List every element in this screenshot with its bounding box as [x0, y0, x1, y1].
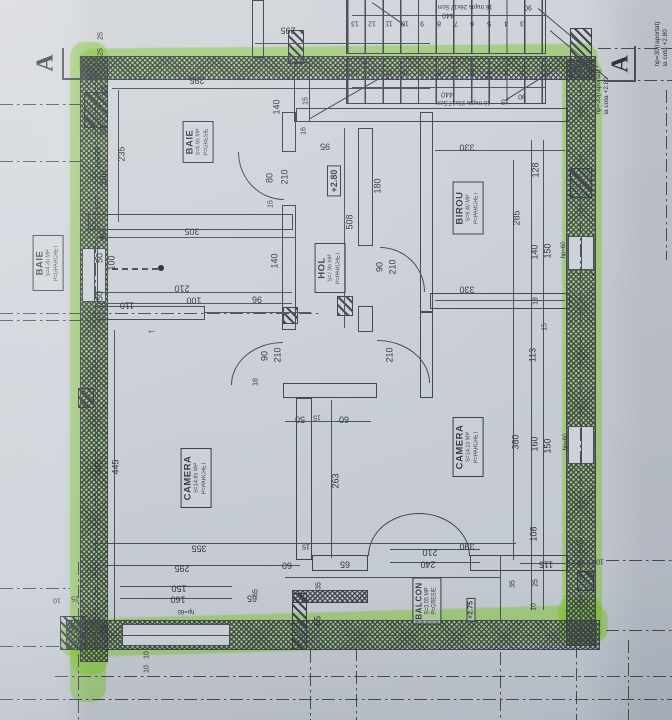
room-label-camera2: CAMERA S=14.15 MP P=PARCHET [453, 417, 484, 477]
dim-label: 15 [302, 543, 310, 550]
dim-label: 35 [510, 580, 517, 588]
dim-label: 100 [186, 296, 201, 305]
dim-label: 285 [513, 210, 522, 225]
wall-stair-left [294, 62, 310, 122]
axis-line [666, 90, 667, 260]
dim-label: 10 [144, 651, 151, 659]
dim-label: 25 [533, 579, 540, 587]
step-number: 9 [420, 20, 424, 27]
step-number: 6 [470, 69, 474, 76]
dim-label: 140 [271, 253, 280, 268]
step-number: 10 [401, 20, 409, 27]
dimension-line [435, 150, 565, 151]
dim-label: 160 [531, 436, 540, 451]
dim-label: 160 [170, 595, 185, 604]
step-number: 11 [385, 69, 392, 76]
dim-label: 150 [171, 584, 186, 593]
wall-hol-right-upper [358, 128, 373, 246]
dim-label: 10 [596, 558, 604, 565]
note-hp30: hp=30(raportat) la cota +2.80 [595, 70, 611, 115]
dim-label: 50 [96, 253, 105, 263]
axis-line [310, 650, 311, 720]
dim-label: 390 [459, 542, 474, 551]
dim-label: 140 [531, 244, 540, 259]
dimension-line [114, 330, 115, 620]
dim-label: 180 [374, 178, 383, 193]
dimension-line [112, 88, 430, 89]
dim-label: 100 [108, 255, 117, 270]
dim-label: 18 [253, 378, 260, 386]
dim-label: 15 [501, 98, 509, 105]
dim-label: 440 [442, 12, 454, 19]
axis-line [0, 646, 62, 647]
axis-line [576, 645, 577, 720]
room-label-balcon: BALCON S=3.05 MP P=GRESIE [412, 578, 441, 625]
dim-label: 210 [174, 284, 189, 293]
step-number: 13 [351, 69, 359, 76]
room-area: S=4.30 MP [46, 241, 53, 284]
step-number: 11 [385, 20, 392, 27]
room-name: CAMERA [456, 421, 466, 473]
axis-line [0, 313, 320, 314]
dim-label: 90 [524, 4, 532, 11]
dim-label: 90 [376, 262, 385, 272]
dim-label: 10 [144, 665, 151, 673]
dim-label: 50 [295, 415, 305, 424]
dim-label: 15 [102, 625, 109, 633]
room-area: S=7.95 MP [328, 249, 335, 287]
dim-label: 150 [544, 438, 553, 453]
room-floor: P=GPARCHET [53, 241, 60, 284]
dimension-line [96, 292, 292, 293]
dim-label: 508 [346, 214, 355, 229]
wall-left [80, 56, 108, 662]
step-number: 7 [454, 69, 458, 76]
room-label-camera1: CAMERA S=14.85 MP P=PARCHET [181, 448, 212, 508]
dim-label: 25 [98, 48, 105, 56]
room-area: S=9.40 MP [466, 188, 473, 229]
dimension-line [520, 563, 596, 564]
axis-line [356, 648, 357, 720]
wall-upper-room [252, 0, 264, 58]
note-line: hp=30(raportat) [654, 22, 661, 67]
dim-label: 100 [100, 170, 109, 185]
balcony-line [500, 555, 501, 621]
room-name: CAMERA [184, 452, 194, 504]
dim-label: 25 [71, 595, 79, 602]
dim-label: 355 [191, 544, 206, 553]
step-number: 3 [520, 69, 524, 76]
step-number: 9 [420, 69, 424, 76]
dim-label: 65 [101, 85, 110, 95]
dim-label: 35 [576, 538, 584, 545]
dim-label: 108 [530, 526, 539, 541]
dim-label: 25 [98, 32, 105, 40]
section-line [62, 48, 64, 80]
dim-label: 50 [100, 125, 109, 135]
dim-label: 113 [529, 348, 538, 362]
dim-label: 295 [174, 564, 189, 573]
dimension-line [97, 86, 98, 306]
step-number: 8 [437, 69, 441, 76]
room-label-baie2: BAIE S=6.95 MP P=GRESIE [183, 121, 214, 163]
wall-t-center [283, 383, 377, 398]
dim-label: 235 [118, 146, 127, 161]
room-area: S=14.85 MP [194, 455, 201, 502]
dim-label: 445 [112, 459, 121, 474]
axis-line [0, 104, 84, 105]
axis-line [580, 60, 581, 644]
dim-label: 16 trepte 26x17.5cm [436, 99, 491, 105]
axis-line [500, 652, 501, 720]
dim-label: 210 [281, 169, 290, 184]
dim-label: 210 [422, 548, 437, 557]
room-floor: P=PARCHET [335, 249, 342, 287]
dim-label: 330 [459, 285, 474, 294]
dim-label: 25 [68, 625, 75, 633]
wall-hol-right-stub [358, 306, 373, 332]
dim-label: 295 [280, 26, 295, 35]
dim-label: 25 [576, 560, 584, 567]
room-area: S=3.05 MP [424, 583, 431, 618]
dim-label: 380 [512, 434, 521, 449]
dim-label: 90 [261, 351, 270, 361]
dim-label: 18 [533, 297, 540, 305]
dim-label: 150 [544, 243, 553, 258]
step-number: 13 [351, 20, 359, 27]
balcony-parapet [292, 590, 368, 603]
dim-label: 50 [96, 291, 105, 301]
dimension-line [435, 300, 565, 301]
dim-label: 15 [313, 414, 321, 421]
dim-label: 65 [253, 589, 260, 597]
room-name: BALCON [415, 582, 424, 621]
section-marker-A-left: A [33, 54, 60, 71]
dim-label: 15 [268, 200, 275, 208]
dim-label: hp=60 [178, 608, 195, 614]
step-number: 8 [437, 20, 441, 27]
level-marker-balcon: +2.75 [467, 598, 476, 622]
pier [78, 388, 94, 408]
room-floor: P=GRESIE [431, 583, 438, 618]
step-number: 4 [504, 69, 508, 76]
dim-label: 140 [273, 99, 282, 114]
dim-label: 35 [316, 582, 323, 590]
room-floor: P=PARCHET [473, 188, 480, 229]
dim-label: 40 [99, 230, 108, 240]
step-number: 4 [504, 20, 508, 27]
pier [337, 296, 353, 316]
room-name: BAIE [36, 239, 46, 287]
dim-label: 16 trepte 26x17.5cm [438, 3, 493, 9]
step-number: 3 [520, 20, 524, 27]
dim-label: 295 [189, 76, 204, 85]
room-floor: P=PARCHET [201, 455, 208, 502]
step-number: 5 [487, 20, 491, 27]
dimension-line [255, 43, 430, 44]
wall-birou-camera [430, 293, 570, 309]
dim-label: 128 [532, 162, 541, 177]
dim-label: 15 [542, 323, 549, 331]
room-name: BIROU [456, 186, 466, 231]
axis-line [80, 66, 598, 67]
axis-line [0, 588, 70, 589]
dim-label: hp=60 [563, 434, 569, 451]
dim-label: 330 [459, 143, 474, 152]
dim-label: 96 [252, 295, 262, 304]
door-swing-dash [112, 268, 158, 270]
dim-label: 305 [184, 227, 199, 236]
dim-label: 80 [266, 173, 275, 183]
dimension-line [352, 87, 545, 88]
dim-label: 110 [120, 301, 134, 310]
room-label-hol: HOL S=7.95 MP P=PARCHET [315, 243, 346, 293]
axis-line [0, 161, 82, 162]
dim-label: 240 [420, 560, 435, 569]
dim-label: 15 [303, 97, 310, 105]
step-number: 7 [454, 20, 458, 27]
door-arc-baie2 [238, 152, 284, 200]
note-hp30: hp=30(raportat) la cota +2.80 [654, 22, 670, 67]
wall-birou-left-lower [420, 312, 433, 398]
room-area: S=6.95 MP [196, 127, 203, 158]
step-number: 12 [368, 20, 376, 27]
dim-label: 60 [339, 415, 349, 424]
step-number: 5 [487, 69, 491, 76]
dimension-line [543, 140, 544, 610]
dim-label: 60 [282, 561, 292, 570]
room-name: HOL [318, 247, 328, 289]
dimension-line [96, 237, 296, 238]
dim-label: 115 [539, 560, 553, 569]
dim-label: 16 [301, 127, 308, 135]
dim-label: hp=60 [561, 242, 567, 259]
dim-label: 445 [95, 459, 104, 474]
dim-label: 210 [389, 259, 398, 274]
reference-dot [158, 265, 164, 271]
axis-line [0, 320, 96, 321]
dim-label: hp=110 [96, 147, 102, 167]
dim-label: 65 [340, 560, 350, 569]
dim-label: 210 [386, 347, 395, 362]
axis-line [78, 562, 79, 720]
axis-line [55, 676, 672, 677]
room-area: S=14.15 MP [466, 424, 473, 471]
room-label-baie1: BAIE S=4.30 MP P=GPARCHET [33, 235, 64, 291]
floor-plan-photo: 13 12 11 10 9 8 7 6 5 4 3 13 12 11 10 9 … [0, 0, 672, 720]
dim-label: 10 [53, 597, 61, 604]
note-line: la cota +2.80 [603, 77, 610, 114]
room-label-birou: BIROU S=9.40 MP P=PARCHET [453, 182, 484, 235]
room-name: BAIE [186, 125, 196, 159]
section-line [608, 80, 636, 82]
dim-label: 95 [320, 142, 330, 151]
balcony-line [285, 577, 500, 578]
dim-label: 440 [441, 91, 453, 98]
level-marker-hol: +2.80 [327, 166, 341, 197]
dim-label: 15 [96, 202, 103, 210]
step-number: 6 [470, 20, 474, 27]
note-line: hp=30(raportat) [595, 70, 602, 115]
step-number: 12 [368, 69, 376, 76]
wall-stair-bottom [296, 108, 568, 122]
dim-label: 10 [531, 603, 538, 611]
room-floor: P=PARCHET [473, 424, 480, 471]
section-marker-A-right: A [608, 55, 635, 72]
dimension-line [96, 565, 300, 566]
axis-line [0, 699, 672, 700]
dim-label: 90 [518, 93, 526, 100]
room-floor: P=GRESIE [203, 127, 210, 158]
note-line: la cota +2.80 [662, 29, 669, 66]
axis-line [606, 560, 672, 561]
axis-line [628, 640, 629, 720]
step-number: 10 [401, 69, 409, 76]
axis-line [606, 630, 672, 631]
axis-line [84, 635, 600, 636]
dim-label: 210 [274, 347, 283, 362]
dim-label: 65 [314, 616, 323, 626]
pier [60, 616, 86, 650]
dim-label: 263 [332, 473, 341, 488]
arrow-left-icon: ← [147, 326, 158, 337]
dimension-line [97, 330, 98, 620]
section-line [62, 78, 88, 80]
